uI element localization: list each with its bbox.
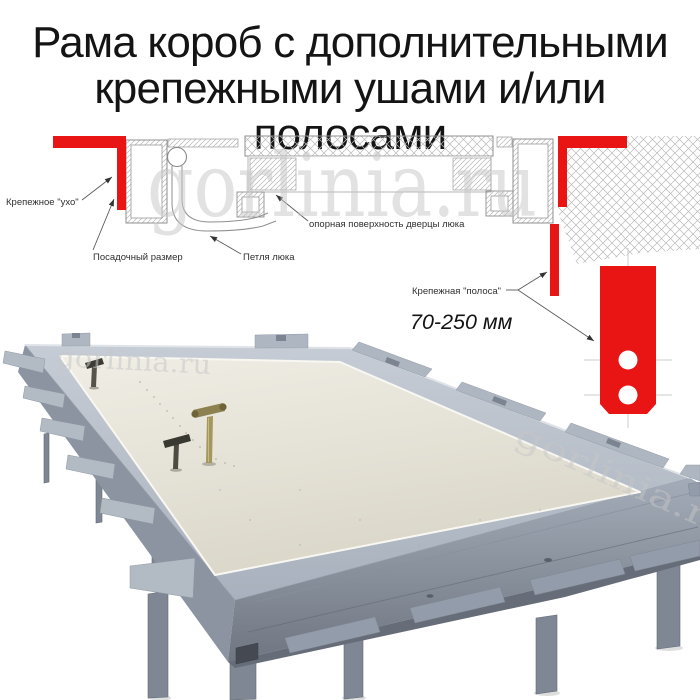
- label-mounting-ear: Крепежное "ухо": [6, 197, 79, 208]
- strip-detail-illustration: [584, 248, 672, 428]
- mounting-strip-shape: [550, 224, 559, 296]
- strip-hole-top: [619, 351, 638, 370]
- label-seating-dimension: Посадочный размер: [93, 252, 183, 263]
- label-hatch-hinge: Петля люка: [243, 252, 295, 263]
- label-strip-length-range: 70-250 мм: [410, 310, 513, 334]
- scene-graphic: Крепежное "ухо" Посадочный размер Петля …: [0, 0, 700, 700]
- wall-hatch-area: [558, 136, 700, 264]
- label-mounting-strip: Крепежная "полоса": [412, 286, 501, 297]
- strip-hole-bottom: [619, 386, 638, 405]
- watermark-diagram: gorlinia.ru: [147, 134, 537, 237]
- product-photo: gorlinia.ru gorlinia.ru: [3, 333, 700, 700]
